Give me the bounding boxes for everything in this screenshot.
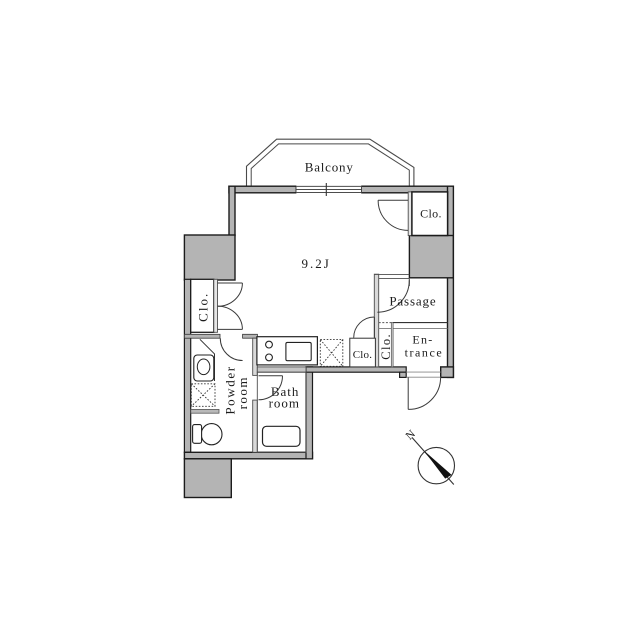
svg-text:trance: trance bbox=[405, 345, 444, 359]
svg-text:Passage: Passage bbox=[389, 294, 436, 309]
svg-text:Clo.: Clo. bbox=[353, 349, 372, 361]
svg-text:Clo.: Clo. bbox=[196, 292, 211, 322]
svg-text:Balcony: Balcony bbox=[305, 159, 354, 174]
svg-text:room: room bbox=[269, 395, 300, 410]
svg-text:Clo.: Clo. bbox=[420, 207, 442, 221]
svg-text:9.2J: 9.2J bbox=[302, 256, 331, 271]
svg-text:Clo.: Clo. bbox=[379, 333, 393, 360]
